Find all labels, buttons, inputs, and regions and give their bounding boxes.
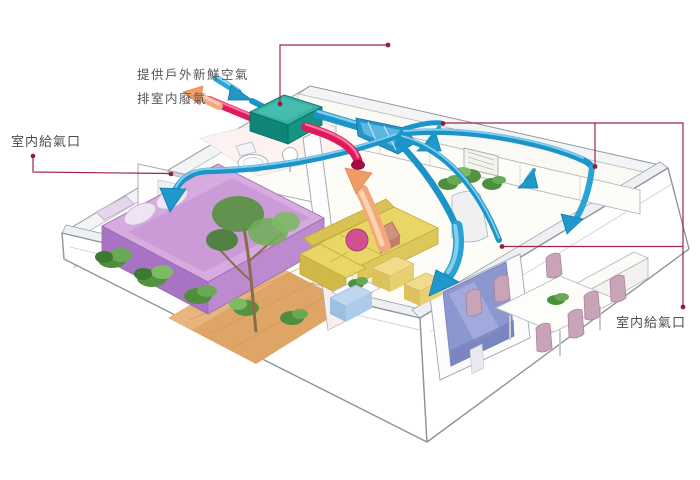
label-supply-vent-left: 室内給氣口 xyxy=(11,131,81,150)
exhaust-inlet xyxy=(352,161,365,170)
ventilation-diagram: 提供戶外新鮮空氣 排室内廢氣 室内給氣口 室内給氣口 xyxy=(0,0,700,480)
label-fresh-air-supply: 提供戶外新鮮空氣 xyxy=(137,64,249,83)
ventilation-diagram-canvas xyxy=(0,0,700,480)
label-supply-vent-right: 室内給氣口 xyxy=(616,312,686,331)
label-indoor-exhaust: 排室内廢氣 xyxy=(137,88,207,107)
round-cushion xyxy=(346,229,368,251)
